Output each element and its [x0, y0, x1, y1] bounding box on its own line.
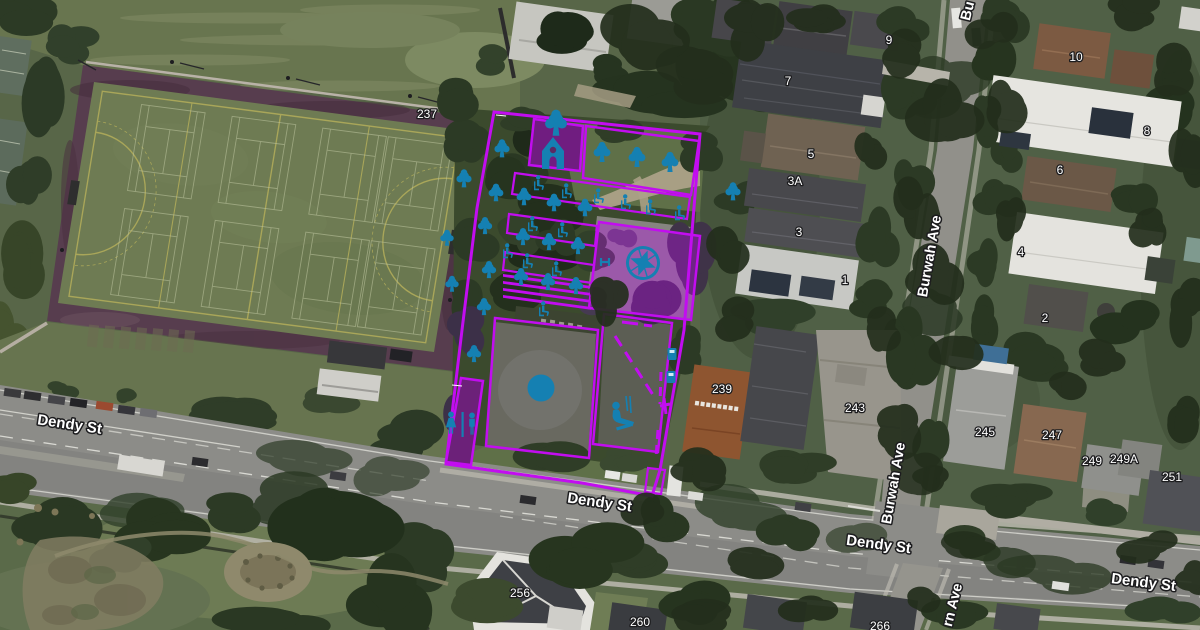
svg-text:8: 8 — [1144, 124, 1151, 138]
svg-text:9: 9 — [886, 33, 893, 47]
svg-text:249: 249 — [1082, 454, 1102, 468]
svg-text:256: 256 — [510, 586, 530, 600]
svg-text:266: 266 — [870, 619, 890, 630]
svg-text:6: 6 — [1057, 163, 1064, 177]
svg-text:249A: 249A — [1110, 452, 1138, 466]
svg-text:3A: 3A — [788, 174, 803, 188]
svg-text:4: 4 — [1018, 245, 1025, 259]
svg-text:1: 1 — [842, 273, 849, 287]
svg-text:251: 251 — [1162, 470, 1182, 484]
svg-text:247: 247 — [1042, 428, 1062, 442]
svg-text:7: 7 — [785, 74, 792, 88]
svg-text:5: 5 — [808, 147, 815, 161]
svg-text:245: 245 — [975, 425, 995, 439]
svg-text:2: 2 — [1042, 311, 1049, 325]
svg-text:239: 239 — [712, 382, 732, 396]
svg-text:243: 243 — [845, 401, 865, 415]
svg-text:237: 237 — [417, 107, 437, 121]
svg-text:10: 10 — [1069, 50, 1083, 64]
svg-text:260: 260 — [630, 615, 650, 629]
svg-text:3: 3 — [796, 225, 803, 239]
